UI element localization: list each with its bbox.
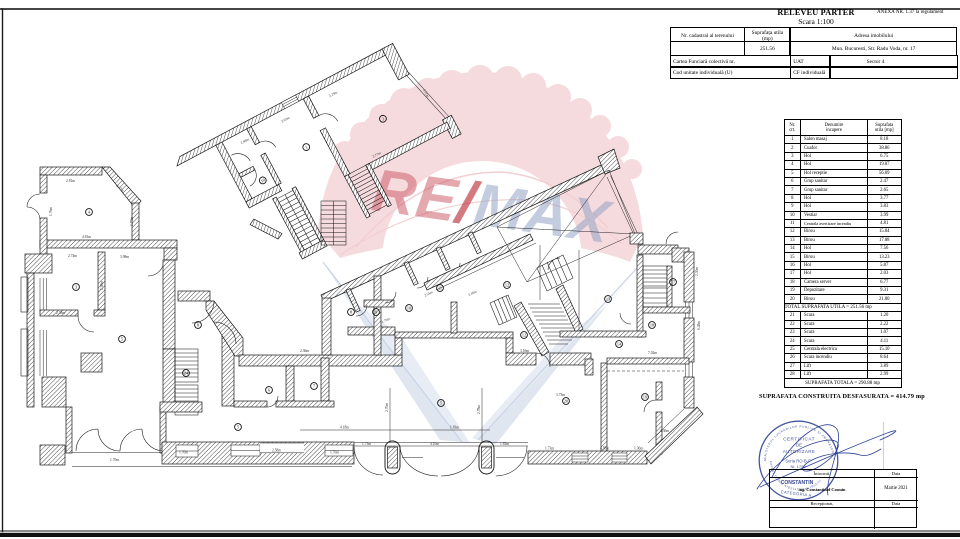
- svg-text:4.10m: 4.10m: [430, 442, 439, 446]
- svg-text:11: 11: [438, 286, 442, 291]
- svg-text:12: 12: [522, 333, 526, 338]
- svg-text:3.29m: 3.29m: [328, 90, 338, 98]
- svg-text:4: 4: [88, 210, 91, 215]
- svg-text:2.78m: 2.78m: [477, 405, 481, 414]
- svg-text:2.58m: 2.58m: [272, 449, 281, 453]
- svg-text:7.02m: 7.02m: [648, 351, 657, 355]
- svg-text:DE: DE: [796, 443, 802, 448]
- svg-text:1: 1: [304, 144, 308, 149]
- svg-text:1.36m: 1.36m: [634, 447, 643, 451]
- svg-text:8: 8: [350, 310, 352, 315]
- svg-text:6: 6: [268, 388, 270, 393]
- svg-text:2.30m: 2.30m: [695, 267, 699, 276]
- svg-text:2.36m: 2.36m: [300, 349, 309, 353]
- svg-text:2.70m: 2.70m: [385, 403, 389, 412]
- svg-text:2.03m: 2.03m: [281, 116, 291, 124]
- svg-text:3: 3: [75, 285, 77, 290]
- svg-text:5: 5: [237, 425, 239, 430]
- svg-text:4.81m: 4.81m: [82, 235, 91, 239]
- svg-text:3.73m: 3.73m: [556, 393, 565, 397]
- svg-text:5: 5: [440, 401, 442, 406]
- svg-text:1.70m: 1.70m: [330, 451, 339, 455]
- svg-text:1.70m: 1.70m: [110, 458, 119, 462]
- svg-text:17: 17: [671, 280, 675, 285]
- svg-text:1.83m: 1.83m: [450, 426, 459, 430]
- svg-text:20: 20: [564, 399, 568, 404]
- svg-text:4.18m: 4.18m: [340, 426, 349, 430]
- svg-text:2.33m: 2.33m: [56, 311, 65, 315]
- svg-text:1.83m: 1.83m: [500, 442, 509, 446]
- svg-text:1.70m: 1.70m: [381, 317, 391, 325]
- svg-text:5: 5: [121, 337, 123, 342]
- svg-text:19: 19: [643, 395, 647, 400]
- svg-text:1.73m: 1.73m: [362, 442, 371, 446]
- svg-text:4.58m: 4.58m: [600, 447, 609, 451]
- svg-text:13: 13: [606, 297, 610, 302]
- svg-text:8: 8: [197, 323, 199, 328]
- svg-text:6.48m: 6.48m: [697, 321, 701, 330]
- svg-text:12: 12: [505, 283, 509, 288]
- svg-text:3.98m: 3.98m: [120, 255, 129, 259]
- svg-text:10: 10: [407, 306, 411, 311]
- svg-text:3.16m: 3.16m: [520, 349, 529, 353]
- svg-text:1.70m: 1.70m: [179, 451, 188, 455]
- svg-text:2.98m: 2.98m: [240, 137, 250, 145]
- svg-text:1.73m: 1.73m: [545, 447, 554, 451]
- svg-text:4.36m: 4.36m: [660, 429, 669, 433]
- svg-text:1.77m: 1.77m: [130, 217, 134, 226]
- svg-text:2.81m: 2.81m: [66, 179, 75, 183]
- svg-text:18: 18: [650, 323, 654, 328]
- svg-text:1.76m: 1.76m: [49, 207, 53, 216]
- svg-text:14: 14: [617, 342, 622, 347]
- svg-text:7: 7: [313, 384, 315, 389]
- svg-text:2.74m: 2.74m: [68, 254, 77, 258]
- svg-text:1.98m: 1.98m: [100, 281, 104, 290]
- svg-text:9: 9: [375, 310, 377, 315]
